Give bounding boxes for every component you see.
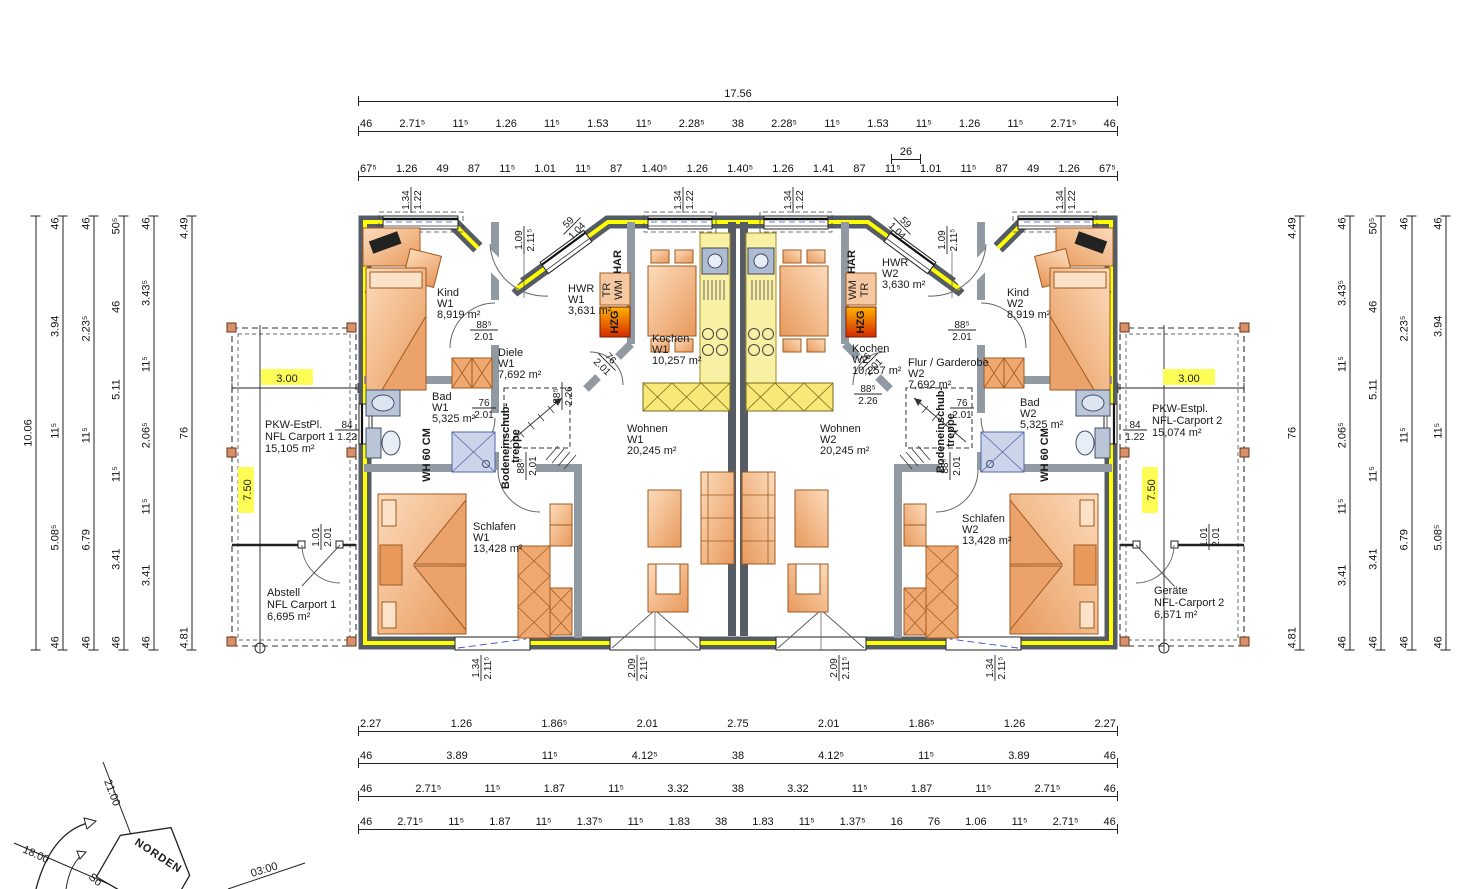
svg-text:2.11⁵: 2.11⁵ [483,657,494,680]
dimension-value: 6.79 [1400,528,1411,551]
svg-text:1.34: 1.34 [985,658,996,678]
dimension-value: 4.49 [1288,217,1299,240]
dimension-value: 4.81 [1288,626,1299,649]
svg-text:2.01: 2.01 [528,456,539,476]
dimension-value: 67⁵ [359,164,378,175]
dimension-value: 2.27 [359,719,382,730]
dimension-value: 3.94 [1434,315,1445,338]
dimension-value: 67⁵ [1098,164,1117,175]
wm-label-w1: WM [613,280,625,300]
dimension-value: 17.56 [723,89,753,100]
dimension-value: 76 [1288,426,1299,440]
dimension-value: 2.23⁵ [1400,315,1411,343]
dim-entry-door-w1: 1.092.11⁵ [514,226,537,254]
dimension-value: 10.06 [24,418,35,448]
dim-terrace-door-wohnen-w1: 2.092.11⁵ [627,655,650,681]
dim-chain-left-inner: 4.81764.49 [179,216,193,651]
dimension-value: 2.01 [636,719,659,730]
dim-side-window-w1: 841.22 [335,420,359,443]
dimension-value: 11⁵ [974,784,992,795]
dimension-value: 1.53 [866,119,889,130]
svg-text:1.34: 1.34 [673,190,684,210]
svg-text:2.11⁵: 2.11⁵ [841,657,852,680]
dimension-value: 46 [359,119,373,130]
svg-text:2.01: 2.01 [323,527,334,547]
dim-side-window-w2: 841.22 [1123,420,1147,443]
svg-text:2.26: 2.26 [858,396,878,407]
dim-terrace-door-schlafen-w1: 1.342.11⁵ [471,655,494,681]
svg-text:1.22: 1.22 [685,190,696,210]
dim-chain-right-inner: 4.81764.49 [1287,216,1301,651]
svg-text:WM: WM [847,280,859,300]
svg-text:3.00: 3.00 [276,373,297,385]
dimension-value: 11⁵ [1011,817,1029,828]
svg-text:1.01: 1.01 [311,527,322,547]
dimension-value: 11⁵ [884,164,902,175]
svg-text:1.34: 1.34 [783,190,794,210]
dimension-value: 46 [82,635,93,649]
dimension-value: 5.11 [112,378,123,401]
dimension-value: 1.26 [1003,719,1026,730]
dim-top-window-kind-w1: 1.341.22 [401,187,424,213]
dim-chain-left-2: 465.08⁵11⁵3.9446 [50,216,64,651]
dimension-value: 11⁵ [112,465,123,483]
svg-text:2.11⁵: 2.11⁵ [526,229,537,252]
dimension-value: 11⁵ [142,497,153,515]
dimension-value: 46 [359,817,373,828]
har-label-w2: HAR [846,250,858,274]
dimension-value: 1.37⁵ [576,817,604,828]
dim-top-window-kochen-w1: 1.341.22 [673,187,696,213]
dimension-value: 5.08⁵ [51,524,62,552]
dimension-value: 4.12⁵ [631,751,659,762]
svg-text:HAR: HAR [846,250,858,274]
dimension-value: 11⁵ [543,119,561,130]
dimension-value: 1.86⁵ [908,719,936,730]
svg-text:7.50: 7.50 [242,479,254,500]
dimension-value: 2.71⁵ [1049,119,1077,130]
dim-carport-width-1: 3.00 [261,369,313,385]
svg-text:1.22: 1.22 [1125,432,1145,443]
dimension-value: 46 [51,217,62,231]
dim-chain-bottom-1: 2.271.261.86⁵2.012.752.011.86⁵1.262.27 [358,718,1118,732]
dimension-value: 1.26 [450,719,473,730]
wh60-label-w1: WH 60 CM [421,428,433,482]
svg-text:76: 76 [478,398,490,409]
dimension-value: 16 [890,817,904,828]
dimension-value: 1.87 [910,784,933,795]
dimension-value: 46 [359,784,373,795]
dimension-value: 46 [51,635,62,649]
svg-text:WM: WM [613,280,625,300]
dimension-value: 3.43⁵ [1338,279,1349,307]
dimension-value: 3.41 [112,548,123,571]
dimension-value: 1.37⁵ [839,817,867,828]
svg-text:2.09: 2.09 [627,658,638,678]
dimension-value: 11⁵ [483,784,501,795]
svg-text:2.11⁵: 2.11⁵ [997,657,1008,680]
dimension-value: 11⁵ [535,817,553,828]
svg-text:2.09: 2.09 [829,658,840,678]
dimension-value: 1.26 [495,119,518,130]
dim-chain-right-2: 465.08⁵11⁵3.9446 [1433,216,1447,651]
svg-text:1.34: 1.34 [1055,190,1066,210]
dimension-value: 1.26 [771,164,794,175]
dimension-value: 11⁵ [1006,119,1024,130]
hzg-label-w2: HZG [855,310,867,333]
dimension-value: 1.53 [586,119,609,130]
dimension-value: 46 [1103,784,1117,795]
dim-chain-left-5: 463.4111⁵2.06⁵11⁵3.43⁵46 [141,216,155,651]
dimension-value: 38 [714,817,728,828]
dimension-value: 11⁵ [635,119,653,130]
dim-chain-bottom-4: 462.71⁵11⁵1.8711⁵1.37⁵11⁵1.83381.8311⁵1.… [358,816,1118,830]
dimension-value: 1.40⁵ [640,164,668,175]
svg-text:3.00: 3.00 [1178,373,1199,385]
dimension-value: 1.01 [533,164,556,175]
dimension-value: 11⁵ [451,119,469,130]
dimension-value: 1.87 [543,784,566,795]
svg-text:1.01: 1.01 [1199,527,1210,547]
dimension-value: 2.71⁵ [414,784,442,795]
dimension-value: 11⁵ [51,422,62,440]
svg-text:2.26: 2.26 [564,386,575,406]
svg-text:84: 84 [1129,420,1141,431]
dimension-value: 1.26 [958,119,981,130]
dimension-value: 46 [142,635,153,649]
svg-text:2.01: 2.01 [952,410,972,421]
dimension-value: 11⁵ [960,164,978,175]
tr-label-w1: TR [601,283,613,298]
dim-chain-bottom-3: 462.71⁵11⁵1.8711⁵3.32383.3211⁵1.8711⁵2.7… [358,783,1118,797]
dimension-value: 2.27 [1094,719,1117,730]
dim-carport-width-2: 3.00 [1163,369,1215,385]
dimension-value: 2.28⁵ [770,119,798,130]
dimension-value: 46 [1338,635,1349,649]
dimension-value: 49 [1026,164,1040,175]
dim-top-window-kochen-w2: 1.341.22 [783,187,806,213]
dimension-value: 11⁵ [1338,355,1349,373]
dimension-value: 11⁵ [142,355,153,373]
dimension-value: 46 [1400,635,1411,649]
svg-text:2.11⁵: 2.11⁵ [639,657,650,680]
dimension-value: 46 [112,635,123,649]
svg-text:1.09: 1.09 [937,230,948,250]
svg-text:88⁵: 88⁵ [954,320,969,331]
svg-text:2.01: 2.01 [474,332,494,343]
dimension-value: 3.89 [445,751,468,762]
svg-text:2.01: 2.01 [1211,527,1222,547]
dim-carport-depth-1: 7.50 [238,467,254,513]
dimension-value: 4.49 [180,217,191,240]
dimension-value: 11⁵ [1369,465,1380,483]
dimension-value: 49 [436,164,450,175]
dimension-value: 50⁵ [112,217,123,236]
dim-top-window-kind-w2: 1.341.22 [1055,187,1078,213]
dimension-value: 1.83 [751,817,774,828]
dim-carport-depth-2: 7.50 [1142,467,1158,513]
dimension-value: 38 [731,119,745,130]
window-kitchen-top [644,212,716,232]
svg-text:2.01: 2.01 [474,410,494,421]
dimension-value: 2.01 [817,719,840,730]
dimension-value: 1.86⁵ [540,719,568,730]
dimension-value: 5.08⁵ [1434,524,1445,552]
svg-text:1.34: 1.34 [471,658,482,678]
svg-text:1.22: 1.22 [1067,190,1078,210]
dimension-value: 3.89 [1007,751,1030,762]
dim-chain-right-3: 466.7911⁵2.23⁵46 [1399,216,1413,651]
compass-1800: 18:00 [21,844,51,866]
dimension-value: 2.71⁵ [1033,784,1061,795]
dimension-value: 3.94 [51,315,62,338]
svg-text:WH 60 CM: WH 60 CM [421,428,433,482]
svg-text:1.22: 1.22 [337,432,357,443]
dimension-value: 46 [82,217,93,231]
compass-2100: 21:00 [101,778,122,808]
dimension-value: 2.06⁵ [142,421,153,449]
dimension-value: 46 [1400,217,1411,231]
dimension-value: 46 [112,300,123,314]
dimension-value: 11⁵ [1434,422,1445,440]
dimension-value: 46 [1103,751,1117,762]
dimension-value: 11⁵ [541,751,559,762]
svg-text:88⁵: 88⁵ [860,384,875,395]
dim-chain-top-small: 26 [891,146,921,160]
dimension-value: 5.11 [1369,378,1380,401]
dim-chain-left-3: 466.7911⁵2.23⁵46 [81,216,95,651]
dimension-value: 1.87 [488,817,511,828]
svg-text:7.50: 7.50 [1146,479,1158,500]
dim-chain-bottom-2: 463.8911⁵4.12⁵384.12⁵11⁵3.8946 [358,750,1118,764]
svg-text:18:00: 18:00 [21,844,51,866]
dimension-value: 50⁵ [1369,217,1380,236]
wh60-label-w2: WH 60 CM [1039,428,1051,482]
svg-text:TR: TR [859,283,871,298]
dimension-value: 46 [1369,635,1380,649]
dimension-value: 2.71⁵ [396,817,424,828]
dim-chain-left-total: 10.06 [23,216,37,651]
dimension-value: 11⁵ [1338,497,1349,515]
svg-text:1.34: 1.34 [401,190,412,210]
dimension-value: 11⁵ [447,817,465,828]
dimension-value: 11⁵ [498,164,516,175]
svg-text:HZG: HZG [609,310,621,333]
hzg-label-w1: HZG [609,310,621,333]
dimension-value: 11⁵ [607,784,625,795]
dimension-value: 4.81 [180,626,191,649]
dim-entry-door-w2: 1.092.11⁵ [937,226,960,254]
dimension-value: 1.40⁵ [726,164,754,175]
svg-text:21:00: 21:00 [101,778,122,808]
dimension-value: 1.06 [964,817,987,828]
dimension-value: 46 [1369,300,1380,314]
dimension-value: 11⁵ [1400,426,1411,444]
dimension-value: 76 [927,817,941,828]
dimension-value: 1.01 [919,164,942,175]
dimension-value: 1.26 [1057,164,1080,175]
dimension-value: 11⁵ [798,817,816,828]
dimension-value: 46 [1103,817,1117,828]
dimension-value: 2.75 [726,719,749,730]
dimension-value: 11⁵ [917,751,935,762]
dimension-value: 11⁵ [851,784,869,795]
dimension-value: 3.41 [1369,548,1380,571]
dim-carport-door-2: 1.012.01 [1199,524,1222,550]
svg-text:88⁵: 88⁵ [516,458,527,473]
svg-text:88⁵: 88⁵ [940,458,951,473]
svg-text:HAR: HAR [612,250,624,274]
dim-chain-right-5: 463.4111⁵2.06⁵11⁵3.43⁵46 [1337,216,1351,651]
dimension-value: 38 [731,751,745,762]
svg-text:1.22: 1.22 [795,190,806,210]
dimension-value: 2.71⁵ [1052,817,1080,828]
dimension-value: 4.12⁵ [817,751,845,762]
svg-text:76: 76 [956,398,968,409]
dimension-value: 11⁵ [915,119,933,130]
dimension-value: 46 [1338,217,1349,231]
dimension-value: 46 [142,217,153,231]
dim-terrace-door-wohnen-w2: 2.092.11⁵ [829,655,852,681]
dimension-value: 87 [467,164,481,175]
dimension-value: 3.41 [142,564,153,587]
carport-label-geraete-2: GeräteNFL-Carport 26,671 m² [1154,585,1224,621]
svg-text:2.11⁵: 2.11⁵ [949,229,960,252]
svg-text:2.01: 2.01 [952,456,963,476]
dimension-value: 46 [359,751,373,762]
svg-text:TR: TR [601,283,613,298]
wm-label-w2: WM [847,280,859,300]
dimension-value: 46 [1434,635,1445,649]
dimension-value: 1.26 [686,164,709,175]
dimension-value: 1.83 [668,817,691,828]
tr-label-w2: TR [859,283,871,298]
dimension-value: 11⁵ [627,817,645,828]
dimension-value: 3.43⁵ [142,279,153,307]
dimension-value: 11⁵ [82,426,93,444]
dimension-value: 1.26 [395,164,418,175]
dimension-value: 11⁵ [574,164,592,175]
dim-chain-top-3: 67⁵1.26498711⁵1.0111⁵871.40⁵1.261.40⁵1.2… [358,163,1118,177]
dimension-value: 26 [899,147,913,158]
carport-label-pkw-1: PKW-EstPl.NFL Carport 115,105 m² [265,419,334,455]
floor-plan-canvas: KindW18,919 m² HWRW13,631 m² DieleW17,69… [0,0,1480,889]
svg-text:88⁵: 88⁵ [476,320,491,331]
dimension-value: 87 [609,164,623,175]
dimension-value: 87 [995,164,1009,175]
svg-text:1.22: 1.22 [413,190,424,210]
dimension-value: 6.79 [82,528,93,551]
dim-carport-door-1: 1.012.01 [311,524,334,550]
dim-chain-top-total: 17.56 [358,88,1118,102]
terrace-door-schlafen [455,637,530,650]
dimension-value: 3.41 [1338,564,1349,587]
carport-label-pkw-2: PKW-Estpl.NFL-Carport 215,074 m² [1152,403,1222,439]
dim-chain-top-2: 462.71⁵11⁵1.2611⁵1.5311⁵2.28⁵382.28⁵11⁵1… [358,118,1118,132]
dimension-value: 1.41 [812,164,835,175]
dim-chain-right-4: 463.4111⁵5.114650⁵ [1368,216,1382,651]
dim-terrace-door-schlafen-w2: 1.342.11⁵ [985,655,1008,681]
dimension-value: 76 [180,426,191,440]
svg-text:84: 84 [341,420,353,431]
dimension-value: 87 [852,164,866,175]
dimension-value: 3.32 [666,784,689,795]
svg-text:1.09: 1.09 [514,230,525,250]
dim-chain-left-4: 463.4111⁵5.114650⁵ [111,216,125,651]
dimension-value: 2.71⁵ [398,119,426,130]
carport-label-abstell-1: AbstellNFL Carport 16,695 m² [267,587,336,623]
svg-text:88⁵: 88⁵ [552,388,563,403]
dimension-value: 46 [1434,217,1445,231]
har-label-w1: HAR [612,250,624,274]
dimension-value: 2.06⁵ [1338,421,1349,449]
dimension-value: 46 [1103,119,1117,130]
dimension-value: 3.32 [786,784,809,795]
svg-text:treppe: treppe [510,429,522,463]
dimension-value: 2.28⁵ [678,119,706,130]
svg-text:WH 60 CM: WH 60 CM [1039,428,1051,482]
dimension-value: 11⁵ [823,119,841,130]
dimension-value: 38 [731,784,745,795]
dimension-value: 2.23⁵ [82,315,93,343]
svg-text:HZG: HZG [855,310,867,333]
svg-text:2.01: 2.01 [952,332,972,343]
